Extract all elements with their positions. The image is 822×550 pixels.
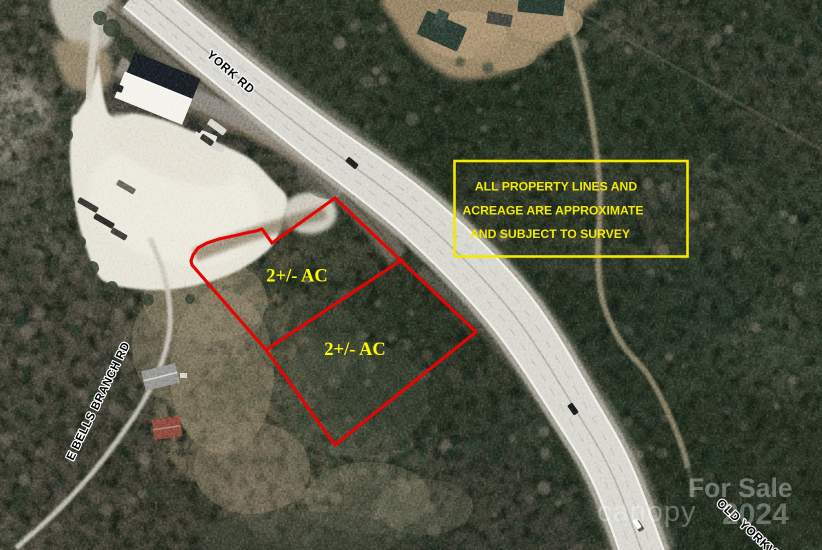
svg-text:2024: 2024: [722, 498, 789, 531]
svg-text:canopy: canopy: [597, 496, 697, 528]
svg-text:ACREAGE ARE APPROXIMATE: ACREAGE ARE APPROXIMATE: [462, 204, 643, 218]
svg-text:2+/- AC: 2+/- AC: [324, 340, 385, 360]
svg-text:2+/- AC: 2+/- AC: [266, 267, 327, 287]
svg-text:AND SUBJECT TO SURVEY: AND SUBJECT TO SURVEY: [470, 227, 630, 241]
svg-text:ALL PROPERTY LINES AND: ALL PROPERTY LINES AND: [475, 180, 637, 194]
